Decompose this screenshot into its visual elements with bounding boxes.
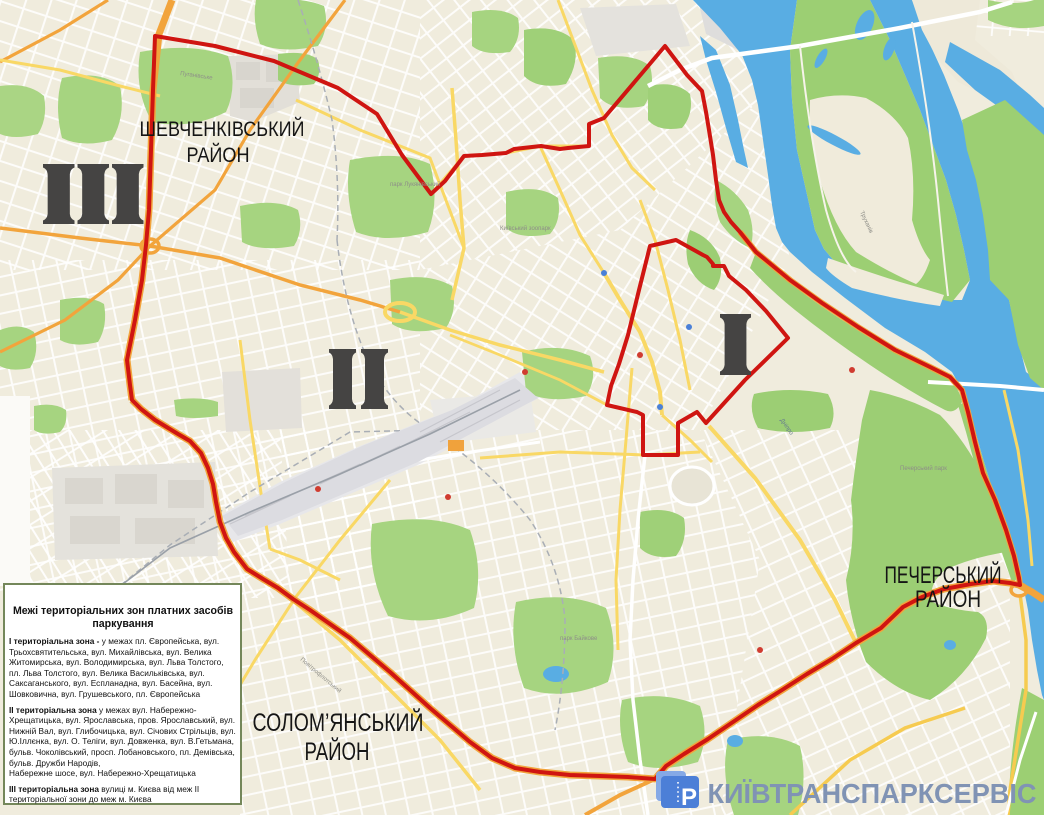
svg-text:ШЕВЧЕНКІВСЬКИЙ: ШЕВЧЕНКІВСЬКИЙ (140, 116, 305, 141)
svg-text:РАЙОН: РАЙОН (915, 585, 981, 613)
svg-text:парк Лукянівський: парк Лукянівський (390, 181, 440, 188)
svg-text:КИЇВТРАНСПАРКСЕРВІС: КИЇВТРАНСПАРКСЕРВІС (708, 778, 1037, 809)
svg-text:РАЙОН: РАЙОН (305, 736, 370, 766)
svg-text:парк Байкове: парк Байкове (560, 635, 598, 642)
svg-text:P: P (681, 784, 697, 811)
svg-text:СОЛОМ’ЯНСЬКИЙ: СОЛОМ’ЯНСЬКИЙ (253, 707, 424, 737)
svg-text:ПЕЧЕРСЬКИЙ: ПЕЧЕРСЬКИЙ (885, 561, 1002, 589)
svg-text:Печерський парк: Печерський парк (900, 465, 947, 472)
svg-text:РАЙОН: РАЙОН (187, 142, 250, 167)
svg-text:Київський зоопарк: Київський зоопарк (500, 225, 551, 232)
